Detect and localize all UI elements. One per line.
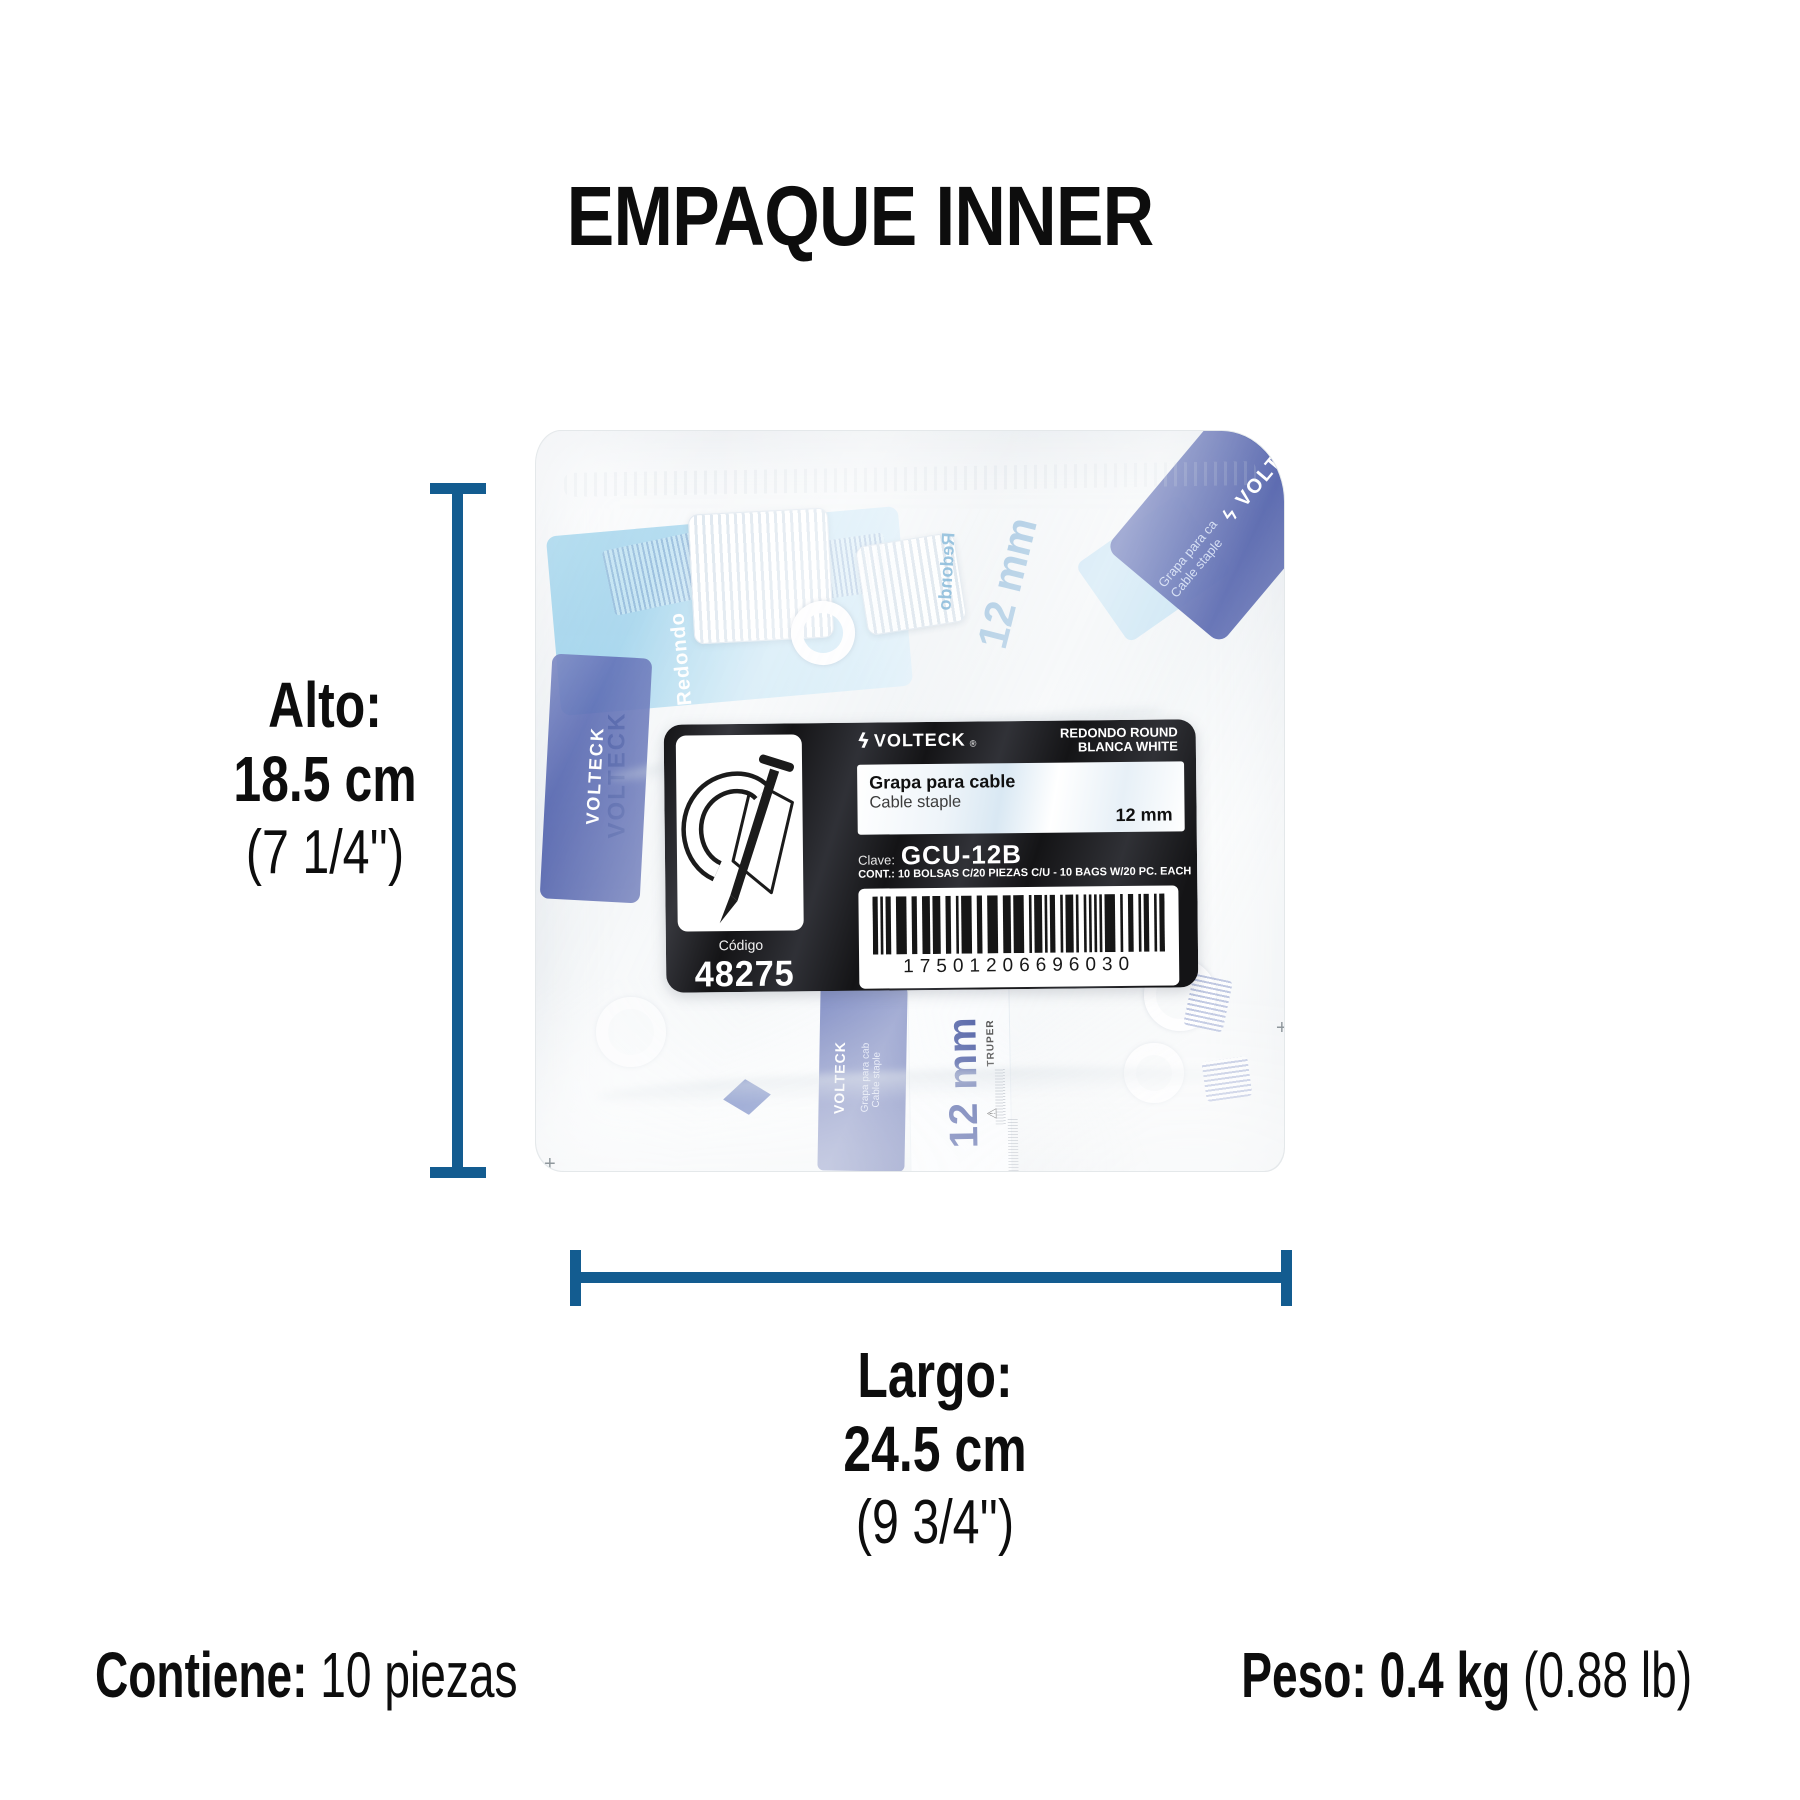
product-name-es: Grapa para cable [869, 771, 1015, 794]
height-metric-value: 18.5 cm [189, 742, 462, 816]
variant-text: REDONDO ROUND BLANCA WHITE [1060, 725, 1178, 754]
codigo-label: Código [678, 936, 804, 953]
registered-trademark: ® [970, 739, 977, 749]
brand-name: VOLTECK [874, 729, 966, 751]
page-title: EMPAQUE INNER [478, 168, 1243, 265]
dimension-cap-right [1281, 1250, 1292, 1306]
product-name-en: Cable staple [869, 792, 1015, 813]
contains-text: Contiene: 10 piezas [95, 1638, 518, 1712]
width-dimension-text: Largo: 24.5 cm (9 3/4'') [779, 1338, 1091, 1560]
dimension-stem-vertical [452, 483, 463, 1178]
clave-label: Clave: [858, 852, 895, 867]
cable-staple-illustration [676, 734, 804, 931]
variant-line-2: BLANCA WHITE [1060, 739, 1178, 754]
label-left-column: Código 48275 [664, 723, 860, 993]
product-size: 12 mm [1115, 804, 1172, 826]
product-packaging-sheet: EMPAQUE INNER Alto: 18.5 cm (7 1/4'') La… [0, 0, 1800, 1800]
volteck-logo-icon: ϟ [855, 728, 871, 754]
registration-mark-icon: + [1276, 1017, 1285, 1040]
volteck-logo-icon: ϟ [1218, 502, 1243, 526]
registration-mark-icon: + [544, 1153, 556, 1172]
width-imperial-value: (9 3/4'') [779, 1486, 1091, 1560]
codigo-value: 48275 [678, 952, 811, 995]
clave-row: Clave: GCU-12B [858, 831, 1185, 868]
printed-fragment [1201, 1056, 1252, 1102]
dimension-cap-bottom [430, 1167, 486, 1178]
dimension-stem-horizontal [570, 1272, 1292, 1283]
inner-label-product-fragment: Grapa para ca Cable staple [1155, 517, 1233, 601]
height-dimension-line [430, 483, 486, 1178]
contains-label: Contiene: [95, 1639, 307, 1711]
cable-staple-loop [596, 997, 666, 1067]
contains-value: 10 piezas [307, 1639, 517, 1711]
truper-fragment-text: TRUPER [985, 1019, 997, 1066]
product-name-band: Grapa para cable Cable staple 12 mm [857, 761, 1185, 834]
width-metric-value: 24.5 cm [779, 1412, 1091, 1486]
weight-label: Peso: 0.4 kg [1241, 1639, 1523, 1711]
barcode-bars [872, 894, 1165, 955]
weight-imperial: (0.88 lb) [1523, 1639, 1692, 1711]
barcode: 17501206696030 [858, 885, 1179, 988]
size-fragment-text: 12 mm [968, 513, 1047, 654]
barcode-number: 17501206696030 [873, 954, 1165, 979]
brand-lockup: ϟ VOLTECK ® [857, 728, 977, 753]
height-imperial-value: (7 1/4'') [189, 816, 462, 890]
mirrored-redondo-text: Redondo [934, 532, 959, 611]
width-dimension-line [570, 1250, 1292, 1306]
weight-text: Peso: 0.4 kg (0.88 lb) [1241, 1638, 1692, 1712]
height-label: Alto: [189, 668, 462, 742]
label-right-column: ϟ VOLTECK ® REDONDO ROUND BLANCA WHITE G… [857, 719, 1187, 990]
product-label: Código 48275 ϟ VOLTECK ® REDONDO ROUND B… [664, 719, 1199, 993]
width-label: Largo: [779, 1338, 1091, 1412]
height-dimension-text: Alto: 18.5 cm (7 1/4'') [189, 668, 462, 890]
fine-print-fragment [1008, 1118, 1019, 1172]
